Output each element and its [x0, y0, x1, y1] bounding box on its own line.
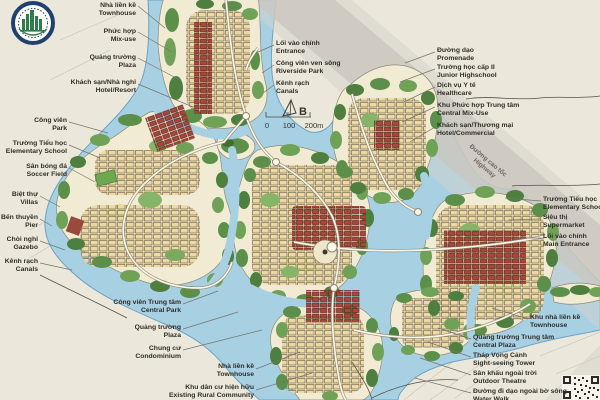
- label-en: Central Plaza: [473, 342, 554, 350]
- label-en: Promenade: [437, 55, 474, 63]
- label-vi: Lối vào chính: [276, 40, 320, 48]
- label-existing-rural: Khu dân cư hiện hữuExisting Rural Commun…: [169, 384, 254, 399]
- label-en: Riverside Park: [276, 68, 341, 76]
- label-vi: Khách sạn/Thương mại: [437, 122, 513, 130]
- label-en: Outdoor Theatre: [473, 378, 537, 386]
- label-gazebo: Chòi nghỉGazebo: [7, 236, 38, 251]
- label-en: Townhouse: [217, 371, 254, 379]
- label-en: Condominium: [135, 353, 181, 361]
- label-vi: Nhà liền kề: [217, 363, 254, 371]
- label-en: Main Entrance: [543, 241, 589, 249]
- label-en: Villas: [12, 199, 38, 207]
- label-canals-n: Kênh rạchCanals: [276, 80, 309, 95]
- label-townhouse-e: Khu nhà liền kềTownhouse: [530, 314, 580, 329]
- label-en: Plaza: [90, 62, 136, 70]
- label-main-entrance: Lối vào chínhMain Entrance: [543, 233, 589, 248]
- label-vi: Công viên ven sông: [276, 60, 341, 68]
- label-mix-use: Phức hợpMix-use: [104, 28, 136, 43]
- label-vi: Lối vào chính: [543, 233, 589, 241]
- label-townhouse-s: Nhà liền kềTownhouse: [217, 363, 254, 378]
- label-en: Entrance: [276, 48, 320, 56]
- label-elementary-school-w: Trường Tiểu họcElementary School: [6, 140, 67, 155]
- label-vi: Bến thuyền: [1, 214, 38, 222]
- label-hotel-commercial: Khách sạn/Thương mạiHotel/Commercial: [437, 122, 513, 137]
- label-vi: Trường học cấp II: [437, 64, 497, 72]
- label-vi: Quảng trường: [90, 54, 136, 62]
- label-healthcare: Dịch vụ Y tếHealthcare: [437, 82, 476, 97]
- label-vi: Dịch vụ Y tế: [437, 82, 476, 90]
- label-vi: Phức hợp: [104, 28, 136, 36]
- label-hotel-resort: Khách sạn/Nhà nghỉHotel/Resort: [71, 79, 136, 94]
- label-condominium: Chung cưCondominium: [135, 345, 181, 360]
- label-en: Townhouse: [99, 10, 136, 18]
- svg-text:0: 0: [265, 121, 269, 130]
- label-vi: Khu nhà liền kề: [530, 314, 580, 322]
- label-elementary-school-e: Trường Tiểu họcElementary School: [543, 196, 600, 211]
- label-sightseeing-tower: Tháp Vọng CảnhSight-seeing Tower: [473, 352, 535, 367]
- label-vi: Đường dạo: [437, 47, 474, 55]
- label-en: Gazebo: [7, 244, 38, 252]
- label-vi: Sân bóng đá: [26, 163, 67, 171]
- label-en: Mix-use: [104, 36, 136, 44]
- label-vi: Chung cư: [135, 345, 181, 353]
- label-vi: Siêu thị: [543, 214, 585, 222]
- label-en: Sight-seeing Tower: [473, 360, 535, 368]
- label-en: Central Park: [113, 307, 181, 315]
- label-en: Central Mix-Use: [437, 110, 519, 118]
- label-en: Elementary School: [543, 204, 600, 212]
- label-water-walk: Đường đi dạo ngoài bờ sôngWater Walk: [473, 388, 567, 400]
- label-en: Hotel/Commercial: [437, 130, 513, 138]
- label-en: Townhouse: [530, 322, 580, 330]
- label-en: Water Walk: [473, 396, 567, 400]
- label-en: Park: [34, 125, 67, 133]
- label-vi: Kênh rạch: [276, 80, 309, 88]
- label-en: Canals: [5, 266, 38, 274]
- label-vi: Nhà liền kề: [99, 2, 136, 10]
- label-outdoor-theatre: Sân khấu ngoài trờiOutdoor Theatre: [473, 370, 537, 385]
- label-supermarket: Siêu thịSupermarket: [543, 214, 585, 229]
- label-plaza-s: Quảng trườngPlaza: [135, 324, 181, 339]
- label-vi: Công viên: [34, 117, 67, 125]
- label-central-plaza: Quảng trường Trung tâmCentral Plaza: [473, 334, 554, 349]
- label-en: Junior Highschool: [437, 72, 497, 80]
- label-vi: Trường Tiểu học: [543, 196, 600, 204]
- label-park: Công viênPark: [34, 117, 67, 132]
- label-canals-w: Kênh rạchCanals: [5, 258, 38, 273]
- qr-code: [562, 375, 600, 400]
- label-en: Hotel/Resort: [71, 87, 136, 95]
- label-vi: Sân khấu ngoài trời: [473, 370, 537, 378]
- label-en: Existing Rural Community: [169, 392, 254, 400]
- label-en: Pier: [1, 222, 38, 230]
- label-vi: Tháp Vọng Cảnh: [473, 352, 535, 360]
- label-junior-highschool: Trường học cấp IIJunior Highschool: [437, 64, 497, 79]
- label-vi: Biệt thự: [12, 191, 38, 199]
- label-vi: Khu Phức hợp Trung tâm: [437, 102, 519, 110]
- label-soccer-field: Sân bóng đáSoccer Field: [26, 163, 67, 178]
- label-riverside-park: Công viên ven sôngRiverside Park: [276, 60, 341, 75]
- label-vi: Khách sạn/Nhà nghỉ: [71, 79, 136, 87]
- label-plaza-nw: Quảng trườngPlaza: [90, 54, 136, 69]
- label-vi: Kênh rạch: [5, 258, 38, 266]
- label-villas: Biệt thựVillas: [12, 191, 38, 206]
- label-en: Canals: [276, 88, 309, 96]
- label-vi: Trường Tiểu học: [6, 140, 67, 148]
- planning-institute-seal-logo: [13, 3, 53, 43]
- svg-text:B: B: [299, 106, 307, 118]
- label-vi: Đường đi dạo ngoài bờ sông: [473, 388, 567, 396]
- label-vi: Quảng trường Trung tâm: [473, 334, 554, 342]
- label-en: Plaza: [135, 332, 181, 340]
- label-vi: Công viên Trung tâm: [113, 299, 181, 307]
- svg-text:200m: 200m: [305, 121, 324, 130]
- label-promenade: Đường dạoPromenade: [437, 47, 474, 62]
- label-en: Elementary School: [6, 148, 67, 156]
- label-vi: Quảng trường: [135, 324, 181, 332]
- label-entrance-n: Lối vào chínhEntrance: [276, 40, 320, 55]
- label-en: Soccer Field: [26, 171, 67, 179]
- label-central-park: Công viên Trung tâmCentral Park: [113, 299, 181, 314]
- svg-text:100: 100: [283, 121, 296, 130]
- label-en: Supermarket: [543, 222, 585, 230]
- masterplan-map: Đường cao tốc Highway B 0 100 200m: [0, 0, 600, 400]
- label-central-mix-use: Khu Phức hợp Trung tâmCentral Mix-Use: [437, 102, 519, 117]
- label-vi: Chòi nghỉ: [7, 236, 38, 244]
- label-en: Healthcare: [437, 90, 476, 98]
- label-townhouse-nw: Nhà liền kềTownhouse: [99, 2, 136, 17]
- label-vi: Khu dân cư hiện hữu: [169, 384, 254, 392]
- label-pier: Bến thuyềnPier: [1, 214, 38, 229]
